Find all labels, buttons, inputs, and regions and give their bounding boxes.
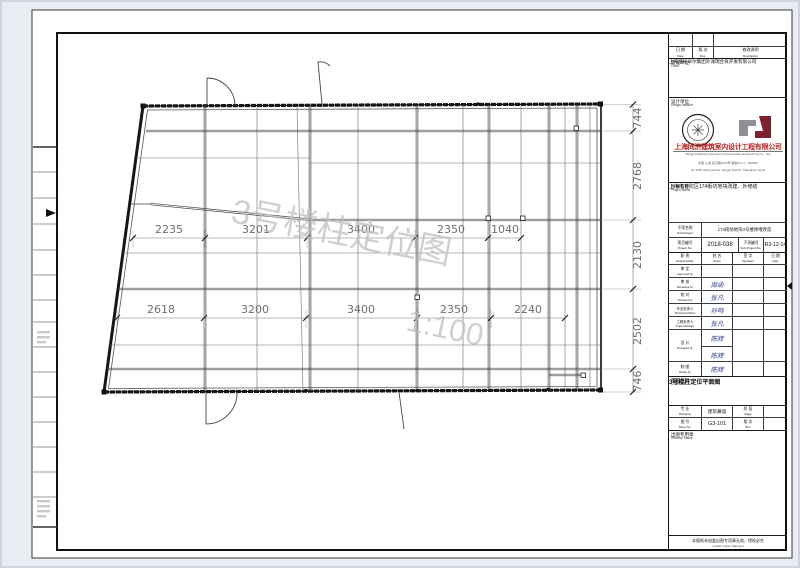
dim-label: 3400: [347, 303, 375, 316]
sign-row-manager: 工程负责人Project Manager 张凡: [669, 316, 787, 329]
sign-header-name: 姓 名Name: [713, 254, 722, 263]
revision-desc-header: 修改说明Description: [743, 47, 759, 58]
plan-bottom-wall: [104, 390, 601, 392]
revision-empty-row: [669, 33, 787, 46]
discipline-row: 专 业Discipline 建筑幕墙 阶 段Stage: [669, 405, 787, 417]
dim-label: 2618: [147, 303, 175, 316]
rev-value: [763, 418, 787, 430]
dim-label: 2768: [631, 162, 644, 190]
sign-table-header: 职 责Responsibility 姓 名Name 签 字Signature 日…: [669, 252, 787, 264]
project-no-label: 项目编号Project No.: [677, 241, 692, 250]
dim-label: 2130: [631, 241, 644, 269]
dim-label: 1040: [491, 223, 519, 236]
release-stamp-section: 出图专用章Release Stamp: [669, 430, 787, 535]
sub-project-no-value: R3-12-14: [763, 238, 787, 252]
client-label: 建设单位Client: [671, 60, 689, 69]
sheet-no-label: 图 号Sheet No.: [679, 420, 691, 429]
dim-label: 2240: [514, 303, 542, 316]
tjad-logo: [739, 116, 771, 138]
sub-project-no-label: 子项编号Sub-Project No.: [740, 241, 761, 250]
design-institute-address: 中国 上海 四平路1230号 邮编(P.C.)：200092: [669, 162, 787, 166]
sign-row-drawn: 制 图Drawn by 陈辉: [669, 361, 787, 376]
revision-header-row: 日 期Date 版 次Rev. 修改说明Description: [669, 46, 787, 58]
sign-row-checked: 校 对Checked by 张凡: [669, 290, 787, 303]
sub-project-row: 子项名称Sub-Project 174街坊地块3号楼修缮改造: [669, 222, 787, 237]
tongji-seal-logo: [683, 115, 714, 146]
sign-row-principal: 专业负责人Principal Architect 孙鸣: [669, 303, 787, 316]
dim-label: 3200: [241, 303, 269, 316]
stage-value: [763, 406, 787, 417]
project-name-section: 项目名称Project Name 上海市普陀区174街坊地块改建、外修缮: [669, 182, 787, 222]
dim-label: 2235: [155, 223, 183, 236]
footer-en: Invalid Unless Stamped: [669, 544, 787, 548]
sign-header-responsibility: 职 责Responsibility: [676, 254, 693, 263]
chart-title-label: 图纸名称Chart Title: [671, 378, 689, 387]
project-name-label: 项目名称Project Name: [671, 184, 690, 193]
sub-project-value: 174街坊地块3号楼修缮改造: [718, 227, 772, 233]
design-institute-company-en: Tongji Architectural Design and Decorati…: [669, 153, 787, 157]
chart-title-section: 图纸名称Chart Title 3号楼柱定位平面图: [669, 376, 787, 405]
drawing-sheet-view: { "watermark": { "title": "3号楼柱定位图", "sc…: [0, 0, 800, 568]
title-block-footer: 本图纸未加盖出图专用章无效，侵权必究 Invalid Unless Stampe…: [669, 535, 787, 550]
project-numbers-row: 项目编号Project No. 2018-038 子项编号Sub-Project…: [669, 237, 787, 252]
discipline-label: 专 业Discipline: [679, 407, 691, 416]
stage-label: 阶 段Stage: [744, 407, 753, 416]
client-section: 建设单位Client 上海临光卓尔集团外滩瑞合资开发有限公司: [669, 58, 787, 97]
release-stamp-label: 出图专用章Release Stamp: [671, 432, 694, 441]
design-institute-label: 设计单位Design Institute: [671, 99, 693, 108]
sign-row-designed: 设 计Designed by 陈辉 陈辉: [669, 329, 787, 361]
revision-rev-header: 版 次Rev.: [698, 47, 707, 58]
sign-header-date: 日 期Date: [771, 254, 780, 263]
sign-header-signature: 签 字Signature: [742, 254, 754, 263]
title-block: 日 期Date 版 次Rev. 修改说明Description 建设单位Clie…: [668, 33, 787, 550]
dim-label: 2502: [631, 317, 644, 345]
design-institute-address2: No.1230 Siping Road, Yangpu District, Sh…: [669, 169, 787, 173]
dim-label: 746: [631, 371, 644, 392]
sign-row-reviewed: 审 核Reviewed by 周函: [669, 277, 787, 290]
sign-row-approved: 审 定Approved by: [669, 264, 787, 277]
revision-date-header: 日 期Date: [676, 47, 685, 58]
discipline-value: 建筑幕墙: [701, 406, 732, 417]
rev-label: 版 次Rev.: [744, 420, 753, 429]
sheet-no-value: G3-101: [701, 418, 732, 430]
sheet-no-row: 图 号Sheet No. G3-101 版 次Rev.: [669, 417, 787, 430]
design-institute-section: 设计单位Design Institute 上海同济建筑室内设计工程有限公司 To…: [669, 97, 787, 182]
project-no-value: 2018-038: [701, 238, 738, 252]
dim-label: 744: [631, 108, 644, 129]
sub-project-label: 子项名称Sub-Project: [677, 226, 693, 235]
